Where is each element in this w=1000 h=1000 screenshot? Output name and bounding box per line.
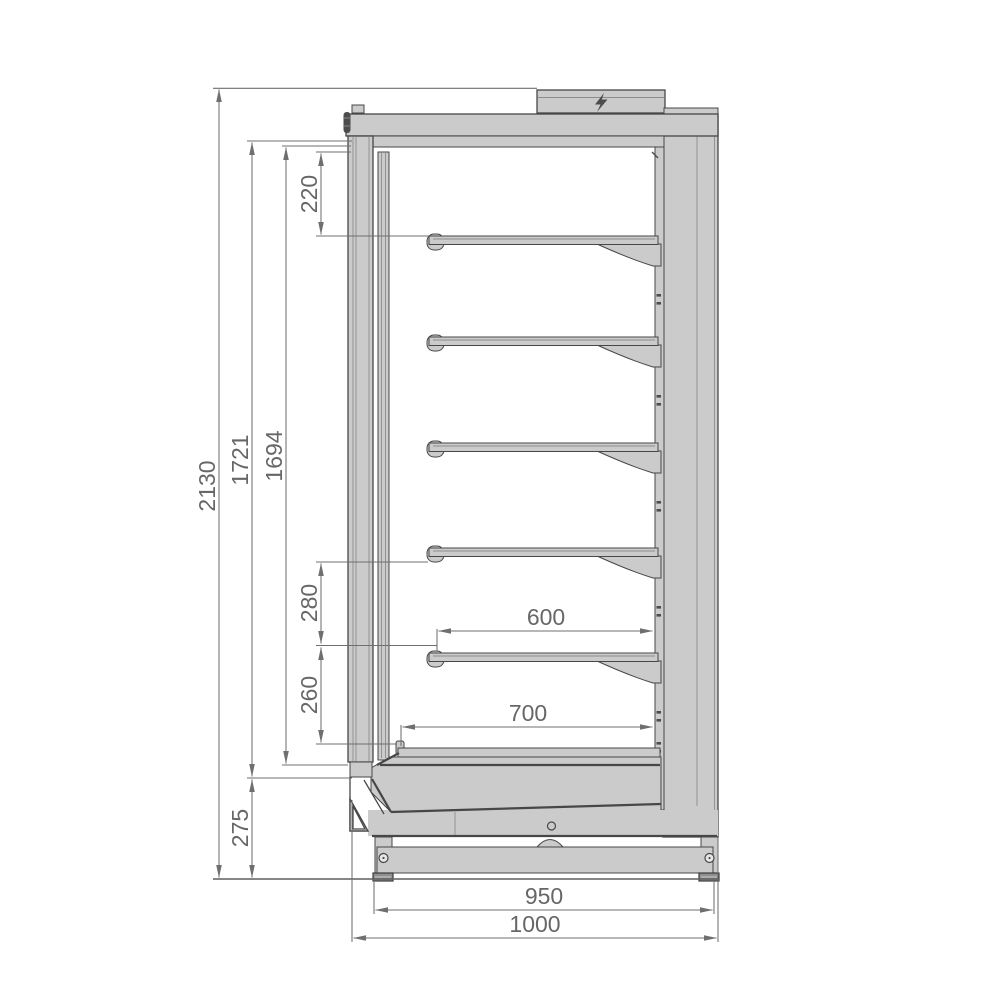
shelf-bracket bbox=[597, 451, 661, 473]
dim-label-base-height: 275 bbox=[227, 809, 253, 847]
shelf-bracket bbox=[597, 661, 661, 683]
dim-label-shelf-depth: 600 bbox=[527, 604, 565, 630]
dim-label-top-to-first-shelf: 220 bbox=[296, 175, 322, 213]
shelf-slab bbox=[429, 653, 658, 662]
top-canopy-panel bbox=[346, 114, 718, 136]
shelf-bracket bbox=[597, 244, 661, 266]
dim-label-interior-height: 1694 bbox=[261, 430, 287, 481]
dim-label-body-width: 950 bbox=[525, 883, 563, 909]
cabinet-body bbox=[344, 90, 720, 881]
plinth-arch-notch bbox=[537, 840, 563, 848]
plinth-panel bbox=[377, 847, 713, 873]
dim-label-overall-height: 2130 bbox=[194, 460, 220, 511]
dim-label-shelf-pitch-upper: 280 bbox=[296, 584, 322, 622]
shelf-3 bbox=[427, 441, 661, 473]
dim-label-door-height: 1721 bbox=[227, 434, 253, 485]
technical-drawing-page: 2130 1721 1694 220 280 260 275 600 700 9… bbox=[0, 0, 1000, 1000]
dim-label-shelf-pitch-lower: 260 bbox=[296, 676, 322, 714]
shelf-2 bbox=[427, 335, 661, 367]
shelf-slab bbox=[429, 337, 658, 346]
base-lower-band bbox=[368, 810, 718, 836]
shelf-5 bbox=[427, 651, 661, 683]
dim-label-deck-depth: 700 bbox=[509, 700, 547, 726]
shelf-slab bbox=[429, 236, 658, 245]
door-frame-foot bbox=[350, 762, 372, 777]
cabinet-section-drawing: 2130 1721 1694 220 280 260 275 600 700 9… bbox=[0, 0, 1000, 1000]
inner-ceiling-panel bbox=[360, 136, 664, 147]
back-panel bbox=[663, 114, 718, 837]
shelf-slab bbox=[429, 548, 658, 557]
bottom-deck bbox=[398, 748, 660, 757]
inner-glass-pane bbox=[378, 152, 389, 760]
shelf-1 bbox=[427, 234, 661, 266]
shelf-4 bbox=[427, 546, 661, 578]
door-hinge bbox=[344, 112, 351, 133]
dim-label-overall-width: 1000 bbox=[509, 911, 560, 937]
top-left-tab bbox=[352, 105, 364, 113]
shelf-bracket bbox=[597, 556, 661, 578]
shelf-slab bbox=[429, 443, 658, 452]
shelf-bracket bbox=[597, 345, 661, 367]
